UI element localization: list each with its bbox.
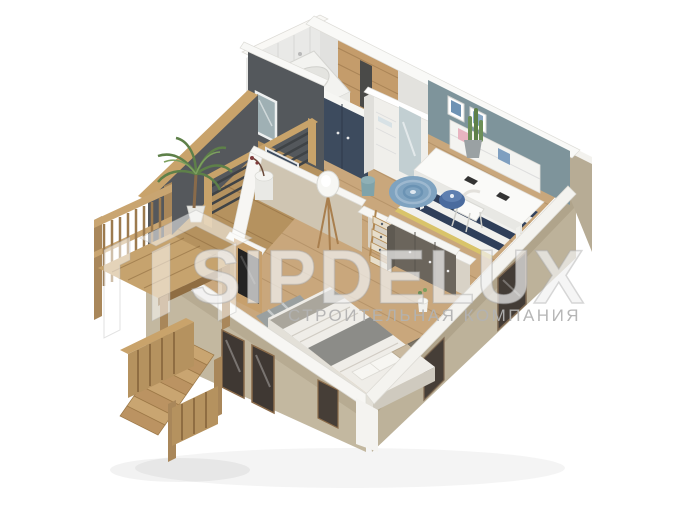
house-3d-floorplan-render	[0, 0, 700, 525]
facade-window	[252, 345, 274, 413]
round-braided-rug	[389, 176, 437, 208]
balcony-window	[256, 92, 276, 142]
faucet	[298, 52, 302, 56]
ground-shadow	[110, 448, 565, 488]
laundry-stool	[361, 176, 375, 196]
facade-window	[222, 330, 244, 398]
screenshot-root: SIPDELUX СТРОИТЕЛЬНАЯ КОМПАНИЯ	[0, 0, 700, 525]
